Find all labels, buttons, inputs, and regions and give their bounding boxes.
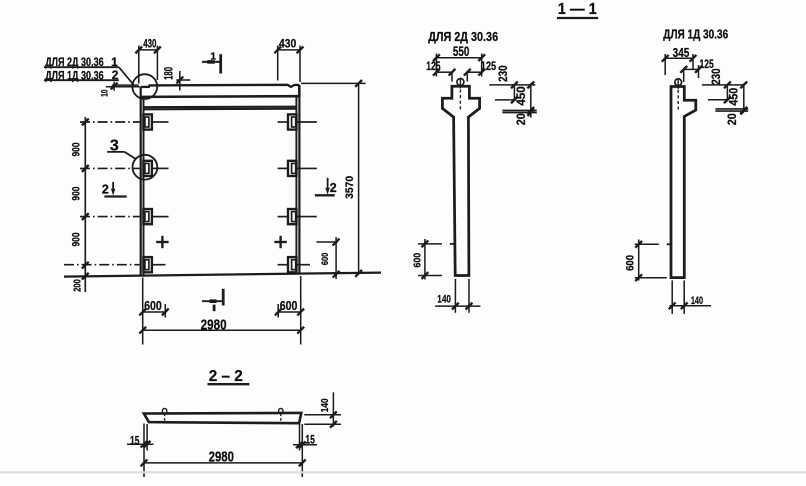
svg-text:1: 1	[210, 50, 216, 62]
svg-text:230: 230	[711, 68, 723, 84]
svg-text:10: 10	[99, 90, 110, 97]
svg-text:600: 600	[412, 253, 424, 268]
svg-text:140: 140	[437, 294, 451, 306]
svg-text:450: 450	[729, 88, 741, 106]
svg-text:430: 430	[143, 36, 156, 50]
svg-text:140: 140	[319, 398, 331, 412]
svg-text:230: 230	[498, 65, 510, 82]
svg-text:600: 600	[280, 298, 298, 313]
svg-text:15: 15	[305, 433, 315, 447]
svg-text:900: 900	[70, 187, 82, 201]
svg-text:2: 2	[330, 181, 337, 195]
svg-text:180: 180	[163, 67, 175, 80]
svg-text:900: 900	[70, 143, 82, 157]
svg-text:450: 450	[516, 86, 528, 105]
svg-text:20: 20	[727, 113, 739, 125]
svg-text:600: 600	[624, 255, 636, 271]
svg-text:2 – 2: 2 – 2	[209, 368, 243, 385]
svg-text:600: 600	[320, 253, 330, 266]
svg-text:1 — 1: 1 — 1	[558, 1, 597, 18]
svg-text:140: 140	[691, 295, 703, 307]
svg-text:ДЛЯ 2Д 30.36: ДЛЯ 2Д 30.36	[428, 29, 498, 44]
svg-text:200: 200	[73, 279, 84, 292]
svg-text:ДЛЯ 1Д 30.36: ДЛЯ 1Д 30.36	[663, 27, 728, 41]
svg-text:3570: 3570	[344, 176, 356, 199]
svg-text:430: 430	[279, 36, 297, 50]
svg-text:2: 2	[102, 182, 109, 196]
svg-text:900: 900	[70, 233, 82, 247]
svg-text:600: 600	[144, 298, 162, 313]
svg-text:15: 15	[130, 433, 140, 447]
svg-text:20: 20	[516, 113, 528, 125]
